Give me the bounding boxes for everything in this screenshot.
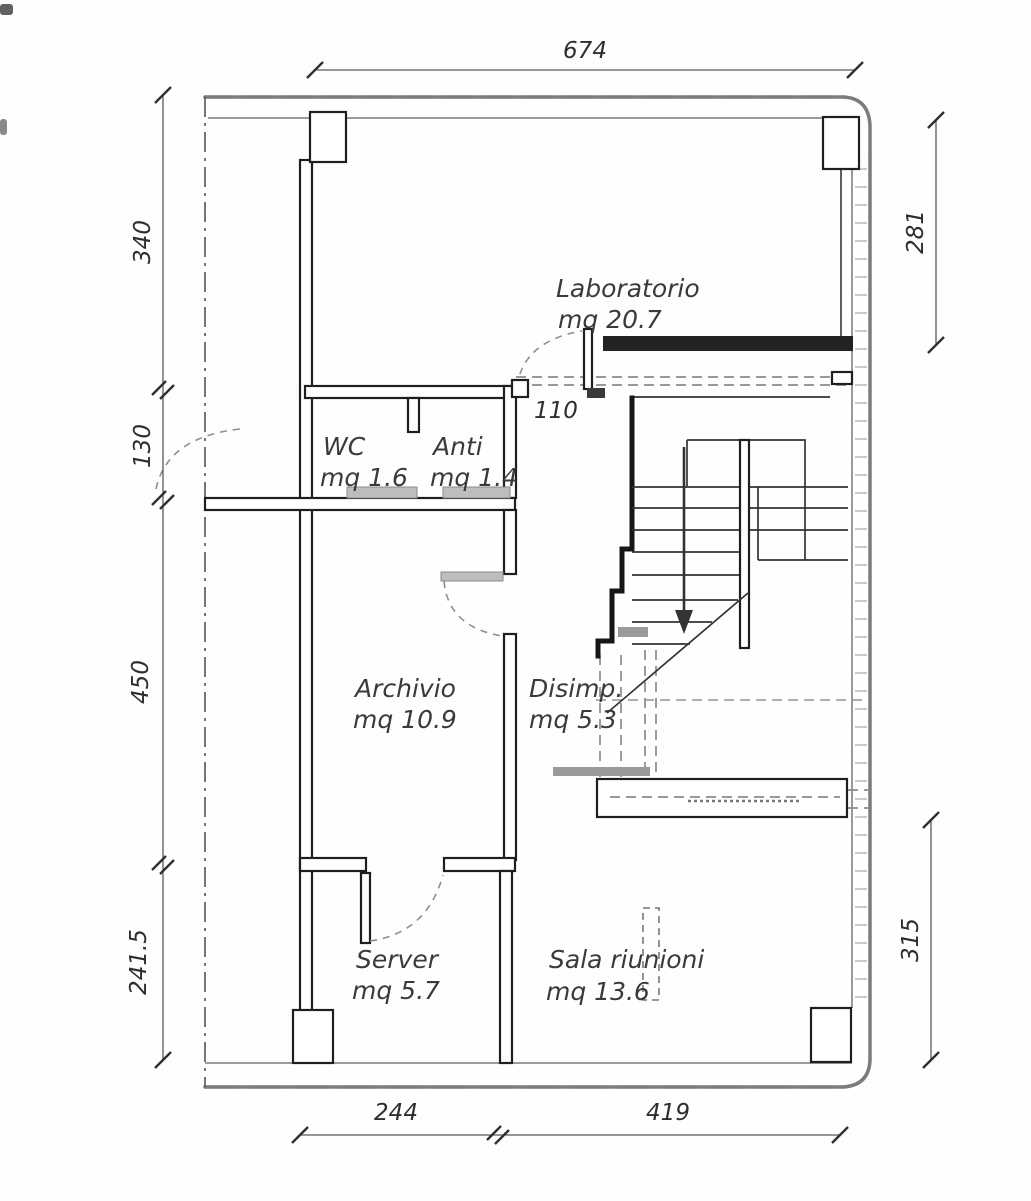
rounded-corner-bottom-right: [842, 1060, 870, 1087]
left-spine-wall: [300, 160, 312, 1012]
server-top-wall-right: [444, 858, 515, 871]
stair-central-stringer: [740, 440, 749, 648]
laboratorio-door-swing: [517, 331, 582, 387]
laboratorio-door-jamb: [587, 388, 605, 398]
label-sala-riunioni-area: mq 13.6: [546, 977, 650, 1006]
label-wc-area: mq 1.6: [320, 463, 408, 492]
floor-plan-drawing: 674 340 130 450 241.5 281 315: [0, 0, 1031, 1201]
dim-label-241-5: 241.5: [126, 929, 152, 995]
column-top-right: [823, 117, 859, 169]
server-door-leaf: [361, 873, 370, 943]
stair-direction-arrow: [675, 447, 693, 634]
staircase: [598, 397, 848, 713]
dim-label-340: 340: [130, 220, 156, 264]
label-laboratorio: Laboratorio: [556, 274, 700, 303]
stair-parapet-wall: [597, 779, 847, 817]
interior-walls: [205, 160, 853, 1063]
column-bottom-right: [811, 1008, 851, 1062]
archivio-right-wall-upper: [504, 510, 516, 574]
server-door-swing: [370, 875, 443, 941]
dim-top: 674: [307, 38, 863, 78]
dim-label-130: 130: [130, 424, 156, 468]
wc-anti-partition-stub: [408, 398, 419, 432]
label-server: Server: [356, 945, 440, 974]
dim-label-281: 281: [903, 210, 929, 254]
dim-left: 340 130 450 241.5: [126, 87, 174, 1068]
label-archivio: Archivio: [353, 674, 456, 703]
archivio-door-swing: [444, 581, 502, 636]
label-disimp-area: mq 5.3: [529, 705, 617, 734]
floor-plan-page: 674 340 130 450 241.5 281 315: [0, 0, 1031, 1201]
balcony-door-post: [832, 372, 852, 384]
scan-artifacts: [0, 4, 13, 135]
server-sala-partition: [500, 871, 512, 1063]
dim-label-450: 450: [128, 660, 154, 704]
label-door-110: 110: [534, 398, 578, 424]
label-anti-area: mq 1.4: [430, 463, 518, 492]
label-laboratorio-area: mq 20.7: [558, 305, 662, 334]
archivio-right-wall-lower: [504, 634, 516, 860]
dim-bottom: 244 419: [292, 1100, 848, 1144]
column-bottom-left: [293, 1010, 333, 1063]
dim-label-315: 315: [898, 918, 924, 962]
dim-right-lower: 315: [898, 812, 939, 1068]
corridor-wall: [205, 498, 515, 510]
entrance-door-swing: [156, 429, 240, 489]
column-top-left: [310, 112, 346, 162]
dim-right-upper: 281: [903, 112, 944, 353]
laboratorio-door-leaf: [584, 329, 592, 389]
stair-threshold: [618, 627, 648, 637]
disimp-low-wall: [553, 767, 650, 776]
label-anti: Anti: [431, 432, 483, 461]
columns: [293, 112, 859, 1063]
dimension-lines: 674 340 130 450 241.5 281 315: [126, 38, 944, 1144]
label-archivio-area: mq 10.9: [353, 705, 457, 734]
label-sala-riunioni: Sala riunioni: [549, 945, 704, 974]
wc-top-wall: [305, 386, 515, 398]
laboratorio-door-post: [512, 380, 528, 397]
stair-enclosure-left-wall: [598, 398, 632, 656]
dim-label-244: 244: [374, 1100, 418, 1126]
label-wc: WC: [323, 432, 366, 461]
label-disimp: Disimp.: [529, 674, 623, 703]
dim-label-419: 419: [646, 1100, 690, 1126]
dim-label-674: 674: [563, 38, 607, 64]
archivio-door-leaf: [441, 572, 503, 581]
laboratorio-stair-wall: [603, 336, 853, 351]
label-server-area: mq 5.7: [352, 976, 440, 1005]
server-top-wall-left: [300, 858, 366, 871]
